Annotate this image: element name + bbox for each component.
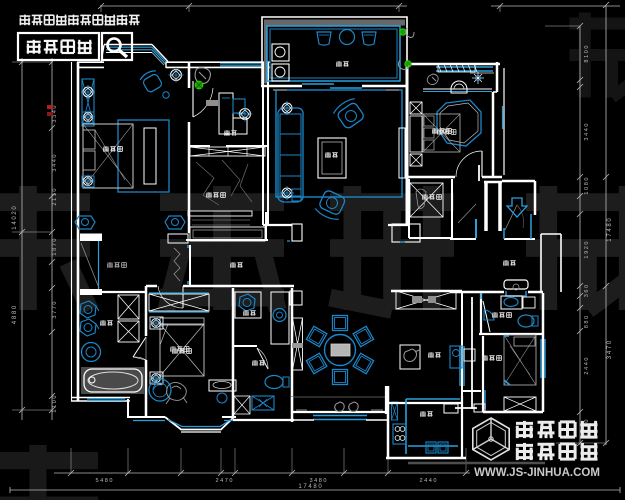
svg-text:2 4 7 0: 2 4 7 0 xyxy=(215,478,232,484)
svg-text:1 8 7 0: 1 8 7 0 xyxy=(52,238,58,255)
svg-text:2 4 4 0: 2 4 4 0 xyxy=(584,357,590,374)
svg-text:8 1 0 0: 8 1 0 0 xyxy=(584,45,590,62)
svg-text:5 4 8 0: 5 4 8 0 xyxy=(95,478,112,484)
svg-text:3 6 0: 3 6 0 xyxy=(584,285,590,297)
svg-text:8 8 0: 8 8 0 xyxy=(584,316,590,328)
svg-text:3 7 7 0: 3 7 7 0 xyxy=(52,301,58,318)
svg-text:WWW.JS-JINHUA.COM: WWW.JS-JINHUA.COM xyxy=(474,467,600,479)
svg-text:3 4 4 0: 3 4 4 0 xyxy=(584,123,590,140)
svg-text:1 4 0 2 0: 1 4 0 2 0 xyxy=(12,206,18,230)
svg-text:1 1 0 0: 1 1 0 0 xyxy=(52,395,58,412)
svg-text:1 0 8 0: 1 0 8 0 xyxy=(584,177,590,194)
svg-text:4 8 8 0: 4 8 8 0 xyxy=(12,305,18,324)
svg-text:1 9 2 0: 1 9 2 0 xyxy=(584,241,590,258)
svg-text:2 1 1 0: 2 1 1 0 xyxy=(52,188,58,205)
svg-text:3 4 7 0: 3 4 7 0 xyxy=(607,340,613,359)
svg-text:1 7 4 8 0: 1 7 4 8 0 xyxy=(607,218,613,242)
svg-text:3 4 4 0: 3 4 4 0 xyxy=(52,154,58,171)
svg-text:2 4 4 0: 2 4 4 0 xyxy=(419,478,436,484)
svg-text:1 7 4 8 0: 1 7 4 8 0 xyxy=(298,484,322,490)
